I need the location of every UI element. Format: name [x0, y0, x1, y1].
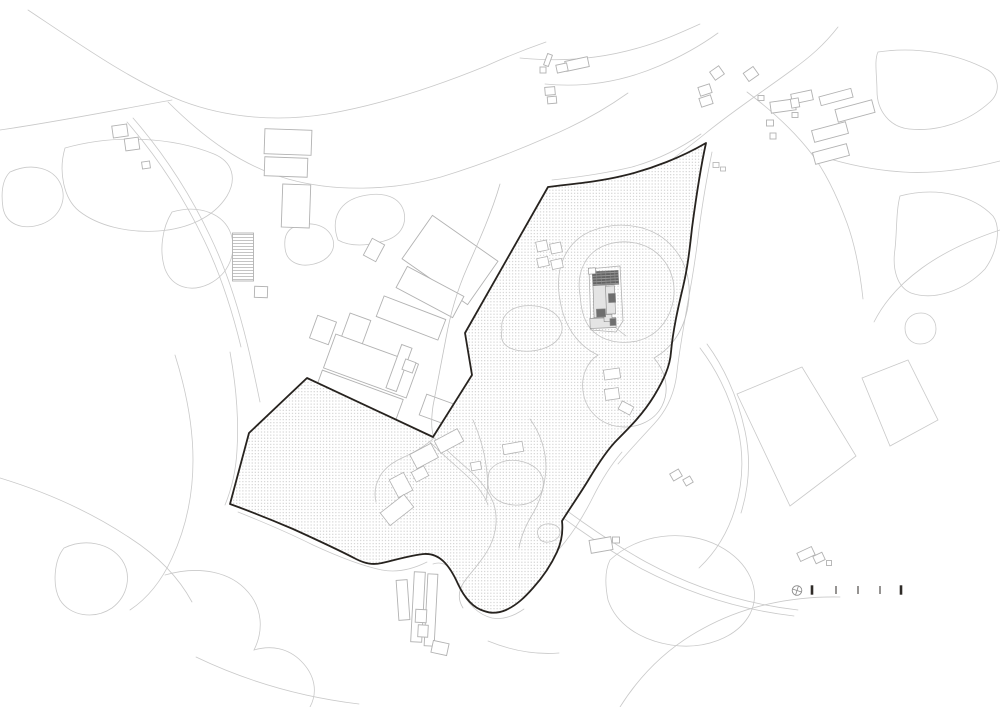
- building-nw-hall: [281, 184, 310, 228]
- building-nw: [124, 137, 140, 151]
- building-greenhouse: [233, 233, 254, 281]
- site-tip-hut: [721, 167, 726, 171]
- building-ne-small: [758, 96, 764, 101]
- site-plan: [0, 0, 1000, 707]
- focus-block-dark-1: [608, 293, 615, 302]
- focus-block-dark-2: [596, 309, 605, 317]
- building-bc: [396, 580, 410, 621]
- scale-tick-light: [857, 586, 858, 594]
- building-nw-hall: [264, 157, 308, 177]
- building-se-house: [613, 537, 620, 543]
- building-tc: [545, 87, 556, 96]
- building-nw: [112, 124, 129, 138]
- site-east-cluster: [604, 388, 619, 401]
- building-shed: [254, 286, 267, 297]
- site-tip-hut: [713, 163, 719, 168]
- focus-block-roof: [592, 270, 619, 285]
- building-ne-small: [790, 98, 799, 108]
- site-pair: [550, 242, 563, 254]
- focus-block-notch: [588, 268, 595, 274]
- building-nw-hall: [264, 129, 312, 156]
- building-tc: [540, 67, 546, 73]
- building-ne-small: [792, 113, 798, 118]
- focus-block-dark-3: [610, 318, 616, 325]
- building-bc: [415, 609, 427, 623]
- scale-tick-dark: [900, 585, 903, 594]
- building-ne-small: [767, 120, 774, 126]
- scale-tick-dark: [811, 585, 814, 594]
- building-ne-small: [770, 133, 776, 139]
- site-shed: [470, 461, 481, 471]
- building-nw: [142, 161, 151, 169]
- site-pair: [537, 256, 550, 267]
- site-pair: [551, 258, 564, 269]
- building-tc: [547, 96, 557, 104]
- building-se: [827, 561, 832, 566]
- scale-tick-light: [879, 586, 880, 594]
- site-east-cluster: [603, 368, 620, 380]
- building-bc: [418, 625, 429, 638]
- site-pair: [536, 240, 549, 252]
- site-plan-svg: [0, 0, 1000, 707]
- building-tc: [556, 63, 568, 73]
- scale-tick-light: [835, 586, 836, 594]
